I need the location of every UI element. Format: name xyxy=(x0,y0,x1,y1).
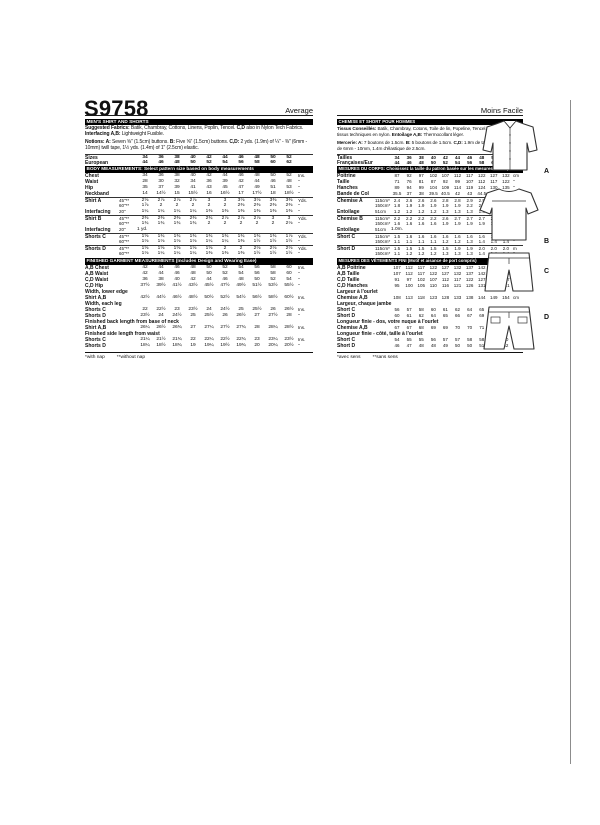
value-cell: 50 xyxy=(451,343,463,349)
text-segment: Mercerie: A: xyxy=(337,140,364,145)
value-cell: 60 xyxy=(265,160,281,166)
value-cell: 70 xyxy=(464,325,476,331)
row-label: Shirt B xyxy=(85,216,119,222)
value-cell: 1⅜ xyxy=(217,209,233,215)
row-label: Shorts D xyxy=(85,343,119,349)
row-label: Short D xyxy=(337,343,375,349)
value-cell: 113 xyxy=(403,295,415,301)
value-cell: 49½ xyxy=(233,283,249,289)
value-cell: 1.2 xyxy=(439,239,451,245)
value-cell: 58½ xyxy=(265,295,281,301)
value-cell: 1¼ xyxy=(185,251,201,257)
value-cell: 69 xyxy=(439,325,451,331)
value-cell: 1¼ xyxy=(137,209,153,215)
value-cell: 37 xyxy=(403,191,415,197)
unit-cell: Ins. xyxy=(297,295,313,301)
value-cell: 56 xyxy=(464,160,476,166)
text-segment: 7 boutons de 1.5cm. xyxy=(364,140,406,145)
value-cell: 1.3 xyxy=(464,251,476,257)
value-cell: 43½ xyxy=(185,283,201,289)
value-cell: 1½ xyxy=(249,239,265,245)
value-cell: 67 xyxy=(464,313,476,319)
value-cell: 1⅜ xyxy=(233,239,249,245)
value-cell: 1⅜ xyxy=(201,209,217,215)
value-cell: 1⅛ xyxy=(169,239,185,245)
value-cell: 47 xyxy=(403,343,415,349)
row-label: European xyxy=(85,160,119,166)
footnote-item: **sans sens xyxy=(372,355,397,360)
value-cell: 1⅜ xyxy=(233,251,249,257)
row-width-sublabel: 20" xyxy=(119,209,137,215)
value-cell: 47½ xyxy=(217,283,233,289)
english-measurement-table: Sizes34363840424446485052European4446485… xyxy=(85,154,313,360)
value-cell: 1⅜ xyxy=(249,209,265,215)
value-cell: 1.1 xyxy=(415,239,427,245)
value-cell: 56 xyxy=(233,160,249,166)
value-cell: 121 xyxy=(451,283,463,289)
text-segment: Entoilage A,B: xyxy=(392,132,424,137)
footnote-item: **without nap xyxy=(117,355,145,360)
table-row: Interfacing20"1 yd. xyxy=(85,227,313,233)
value-cell: 44 xyxy=(137,160,153,166)
value-cell: 28¼ xyxy=(265,325,281,331)
value-cell: 1.3 xyxy=(451,209,463,215)
value-cell: 1.3 xyxy=(464,239,476,245)
value-cell: 1⅜ xyxy=(265,209,281,215)
long-sleeve-shirt-icon xyxy=(480,118,540,176)
value-cell: 48 xyxy=(415,160,427,166)
text-segment: C,D xyxy=(237,125,245,131)
value-cell: 1.2 xyxy=(403,209,415,215)
shorts-c-line-drawing xyxy=(482,250,536,296)
value-cell: 1⅜ xyxy=(233,209,249,215)
garment-label-b: B xyxy=(544,238,549,245)
row-label: Shorts D xyxy=(85,246,119,252)
value-cell: 54 xyxy=(217,160,233,166)
value-cell: 14½ xyxy=(153,191,169,197)
value-cell: 51½ xyxy=(249,283,265,289)
value-cell: 53½ xyxy=(265,283,281,289)
text-segment: Interfacing A,B: xyxy=(85,131,122,137)
value-cell: 128 xyxy=(439,295,451,301)
table-row: 60"**1⅛1¼1¼1¼1⅜1⅜1⅜1½1½1½" xyxy=(85,251,313,257)
row-width-sublabel: 51cm xyxy=(375,209,391,215)
value-cell: 19 xyxy=(185,343,201,349)
value-cell: 44½ xyxy=(153,295,169,301)
shorts-icon xyxy=(482,250,536,296)
value-cell: 48 xyxy=(427,343,439,349)
shirt-b-line-drawing xyxy=(477,186,541,246)
text-segment: C,D: xyxy=(453,140,463,145)
value-cell: 25 xyxy=(185,313,201,319)
value-cell: 46 xyxy=(153,160,169,166)
value-cell: 52 xyxy=(201,160,217,166)
garment-label-a: A xyxy=(544,168,549,175)
value-cell: 1.2 xyxy=(391,209,403,215)
value-cell: 28 xyxy=(249,325,265,331)
value-cell: 1⅛ xyxy=(137,251,153,257)
unit-cell: " xyxy=(297,251,313,257)
value-cell: 25½ xyxy=(201,313,217,319)
value-cell: 54 xyxy=(451,160,463,166)
header-rule-french xyxy=(337,115,523,116)
value-cell: 65 xyxy=(439,313,451,319)
value-cell: 1.2 xyxy=(427,251,439,257)
value-cell: 1½ xyxy=(249,251,265,257)
value-cell: 18¾ xyxy=(169,343,185,349)
pocket-shorts-icon xyxy=(482,304,536,354)
value-cell: 1⅛ xyxy=(153,239,169,245)
value-cell: 16½ xyxy=(217,191,233,197)
shirt-a-line-drawing xyxy=(480,118,540,176)
value-cell: 138 xyxy=(464,295,476,301)
unit-cell: " xyxy=(297,221,313,227)
row-label: Shorts C xyxy=(85,234,119,240)
row-label: Entoilage xyxy=(337,227,375,233)
value-cell: 52½ xyxy=(217,295,233,301)
footnote-item: *with nap xyxy=(85,355,105,360)
english-notions-paragraph: Notions: A: Seven ⅝" (1.5cm) buttons. B:… xyxy=(85,140,313,152)
header-rule-english xyxy=(85,115,313,116)
short-sleeve-shirt-icon xyxy=(477,186,541,246)
value-cell: 70 xyxy=(451,325,463,331)
value-cell: 1⅛ xyxy=(185,239,201,245)
value-cell: 1¼ xyxy=(169,209,185,215)
value-cell: 46 xyxy=(391,343,403,349)
value-cell: 42 xyxy=(451,191,463,197)
row-label: Chemise B xyxy=(337,216,375,222)
value-cell: 1½ xyxy=(265,251,281,257)
english-fabrics-paragraph: Suggested Fabrics: Batik, Chambray, Cott… xyxy=(85,126,313,138)
value-cell: 1.2 xyxy=(427,209,439,215)
value-cell: 27½ xyxy=(217,325,233,331)
value-cell: 1⅜ xyxy=(201,251,217,257)
value-cell: 27½ xyxy=(265,313,281,319)
value-cell: 1.1 xyxy=(391,239,403,245)
value-cell: 66 xyxy=(451,313,463,319)
row-label: Entoilage xyxy=(337,209,375,215)
shorts-d-line-drawing xyxy=(482,304,536,354)
text-segment: 5 boutons de 1.5cm. xyxy=(412,140,454,145)
pattern-envelope-back: S9758 Average Moins Facile MEN'S SHIRT A… xyxy=(0,0,600,825)
row-width-sublabel: 20" xyxy=(119,227,137,233)
value-cell: 46 xyxy=(403,160,415,166)
value-cell: 15½ xyxy=(185,191,201,197)
value-cell: 18½ xyxy=(281,191,297,197)
value-cell: 1.3 xyxy=(451,251,463,257)
value-cell: 37½ xyxy=(137,283,153,289)
value-cell: 18½ xyxy=(153,343,169,349)
value-cell: 46½ xyxy=(169,295,185,301)
value-cell: 1¼ xyxy=(201,239,217,245)
row-label: Neckband xyxy=(85,191,119,197)
row-label: Shirt A xyxy=(85,198,119,204)
value-cell: 27¼ xyxy=(201,325,217,331)
value-cell: 42½ xyxy=(137,295,153,301)
row-width-sublabel: 60"** xyxy=(119,239,137,245)
value-cell: 100 xyxy=(403,283,415,289)
value-cell: 110 xyxy=(427,283,439,289)
unit-cell: Ins. xyxy=(297,325,313,331)
value-cell: 17½ xyxy=(249,191,265,197)
value-cell: 1⅛ xyxy=(137,239,153,245)
value-cell: 17 xyxy=(233,191,249,197)
value-cell: 54½ xyxy=(233,295,249,301)
difficulty-label-french: Moins Facile xyxy=(337,106,523,115)
value-cell: 41½ xyxy=(169,283,185,289)
table-row: 60"**1⅛1⅛1⅛1⅛1¼1¼1⅜1½1½1½" xyxy=(85,239,313,245)
value-cell: 50 xyxy=(427,160,439,166)
garment-label-d: D xyxy=(544,314,549,321)
value-cell: 20¼ xyxy=(265,343,281,349)
value-cell: 1.3 xyxy=(439,251,451,257)
footnote-row: *with nap**without nap xyxy=(85,352,313,360)
value-cell: 1.3 xyxy=(464,209,476,215)
value-cell: 26¾ xyxy=(169,325,185,331)
section-bar: FINISHED GARMENT MEASUREMENTS (Includes … xyxy=(85,258,313,265)
row-label: Short D xyxy=(337,246,375,252)
value-cell: 28 xyxy=(281,313,297,319)
value-cell: 16 xyxy=(201,191,217,197)
value-cell: 20½ xyxy=(281,343,297,349)
value-cell: 52 xyxy=(439,160,451,166)
value-cell: 1¼ xyxy=(169,251,185,257)
unit-cell: " xyxy=(297,191,313,197)
value-cell: 50 xyxy=(185,160,201,166)
value-cell: 19½ xyxy=(217,343,233,349)
text-segment: Lightweight Fusible. xyxy=(122,131,164,137)
value-cell: 1½ xyxy=(281,251,297,257)
value-cell: 1¼ xyxy=(153,251,169,257)
row-label: Interfacing xyxy=(85,227,119,233)
value-cell: 1.2 xyxy=(415,251,427,257)
unit-cell: " xyxy=(297,239,313,245)
english-column: MEN'S SHIRT AND SHORTS Suggested Fabrics… xyxy=(85,118,313,360)
row-span-value: 1 yd. xyxy=(137,227,297,233)
value-cell: 1¼ xyxy=(185,209,201,215)
unit-cell: " xyxy=(297,283,313,289)
value-cell: 19¼ xyxy=(201,343,217,349)
table-row: Interfacing20"1¼1¼1¼1¼1⅜1⅜1⅜1⅜1⅜1⅜" xyxy=(85,209,313,215)
value-cell: 1¼ xyxy=(217,239,233,245)
value-cell: 118 xyxy=(415,295,427,301)
value-cell: 45½ xyxy=(201,283,217,289)
table-row: Shorts D18¼18½18¾1919¼19½19¾2020¼20½" xyxy=(85,343,313,349)
page-fold-divider-line xyxy=(570,100,571,764)
value-cell: 69 xyxy=(427,325,439,331)
value-cell: 116 xyxy=(439,283,451,289)
value-cell: 27 xyxy=(249,313,265,319)
row-label: Short C xyxy=(337,234,375,240)
row-width-sublabel: 150cm* xyxy=(375,239,391,245)
value-cell: 1.1 xyxy=(391,251,403,257)
value-cell: 49 xyxy=(439,343,451,349)
text-segment: C,D: xyxy=(229,139,240,145)
value-cell: 1⅜ xyxy=(217,251,233,257)
value-cell: 1⅜ xyxy=(281,209,297,215)
value-cell: 38 xyxy=(415,191,427,197)
value-cell: 133 xyxy=(451,295,463,301)
row-label: Françaises/Eur xyxy=(337,160,375,166)
text-segment: also in Nylon Tech Fabrics. xyxy=(245,125,303,131)
garment-label-c: C xyxy=(544,268,549,275)
section-bar: BODY MEASUREMENTS: Select pattern size b… xyxy=(85,166,313,173)
value-cell: 56½ xyxy=(249,295,265,301)
row-label: Chemise A xyxy=(337,198,375,204)
value-cell: 108 xyxy=(391,295,403,301)
value-cell: 15 xyxy=(169,191,185,197)
value-cell: 1.3 xyxy=(439,209,451,215)
value-cell: 20 xyxy=(249,343,265,349)
value-cell: 1¼ xyxy=(153,209,169,215)
text-segment: Tissus Conseillés: xyxy=(337,126,377,131)
row-label: Interfacing xyxy=(85,209,119,215)
value-cell: 1½ xyxy=(265,239,281,245)
value-cell: 27 xyxy=(185,325,201,331)
text-segment: Batik, Chambray, Cotons, Toile de lin, P… xyxy=(377,126,487,131)
text-segment: Thermocollant léger. xyxy=(423,132,463,137)
value-cell: 39½ xyxy=(153,283,169,289)
value-cell: 19¾ xyxy=(233,343,249,349)
unit-cell: " xyxy=(297,343,313,349)
value-cell: 14 xyxy=(137,191,153,197)
value-cell: 1½ xyxy=(281,239,297,245)
value-cell: 48½ xyxy=(185,295,201,301)
value-cell: 1.2 xyxy=(451,239,463,245)
value-cell: 50½ xyxy=(201,295,217,301)
value-cell: 1.2 xyxy=(403,251,415,257)
table-row: European44464850525456586062 xyxy=(85,160,313,166)
value-cell: 28½ xyxy=(281,325,297,331)
value-cell: 105 xyxy=(415,283,427,289)
difficulty-label-english: Average xyxy=(85,106,313,115)
value-cell: 55½ xyxy=(281,283,297,289)
value-cell: 62 xyxy=(281,160,297,166)
unit-cell: " xyxy=(297,209,313,215)
value-cell: 39.5 xyxy=(427,191,439,197)
value-cell: 26½ xyxy=(233,313,249,319)
value-cell: 48 xyxy=(415,343,427,349)
value-cell: 1.2 xyxy=(415,209,427,215)
value-cell: 126 xyxy=(464,283,476,289)
value-cell: 60½ xyxy=(281,295,297,301)
row-width-sublabel: 60"** xyxy=(119,251,137,257)
value-cell: 1.1 xyxy=(427,239,439,245)
value-cell: 1.1 xyxy=(403,239,415,245)
value-cell: 95 xyxy=(391,283,403,289)
value-cell: 44 xyxy=(391,160,403,166)
row-width-sublabel: 51cm xyxy=(375,227,391,233)
row-label: Bande de Col xyxy=(337,191,375,197)
value-cell: 50 xyxy=(464,343,476,349)
value-cell: 35.5 xyxy=(391,191,403,197)
value-cell: 123 xyxy=(427,295,439,301)
value-cell: 40.5 xyxy=(439,191,451,197)
footnote-item: *avec sens xyxy=(337,355,360,360)
value-cell: 48 xyxy=(169,160,185,166)
unit-cell: " xyxy=(297,313,313,319)
value-cell: 43 xyxy=(464,191,476,197)
value-cell: 18¼ xyxy=(137,343,153,349)
value-cell: 27¾ xyxy=(233,325,249,331)
value-cell: 58 xyxy=(249,160,265,166)
row-width-sublabel: 150cm* xyxy=(375,251,391,257)
value-cell: 26 xyxy=(217,313,233,319)
value-cell: 18 xyxy=(265,191,281,197)
